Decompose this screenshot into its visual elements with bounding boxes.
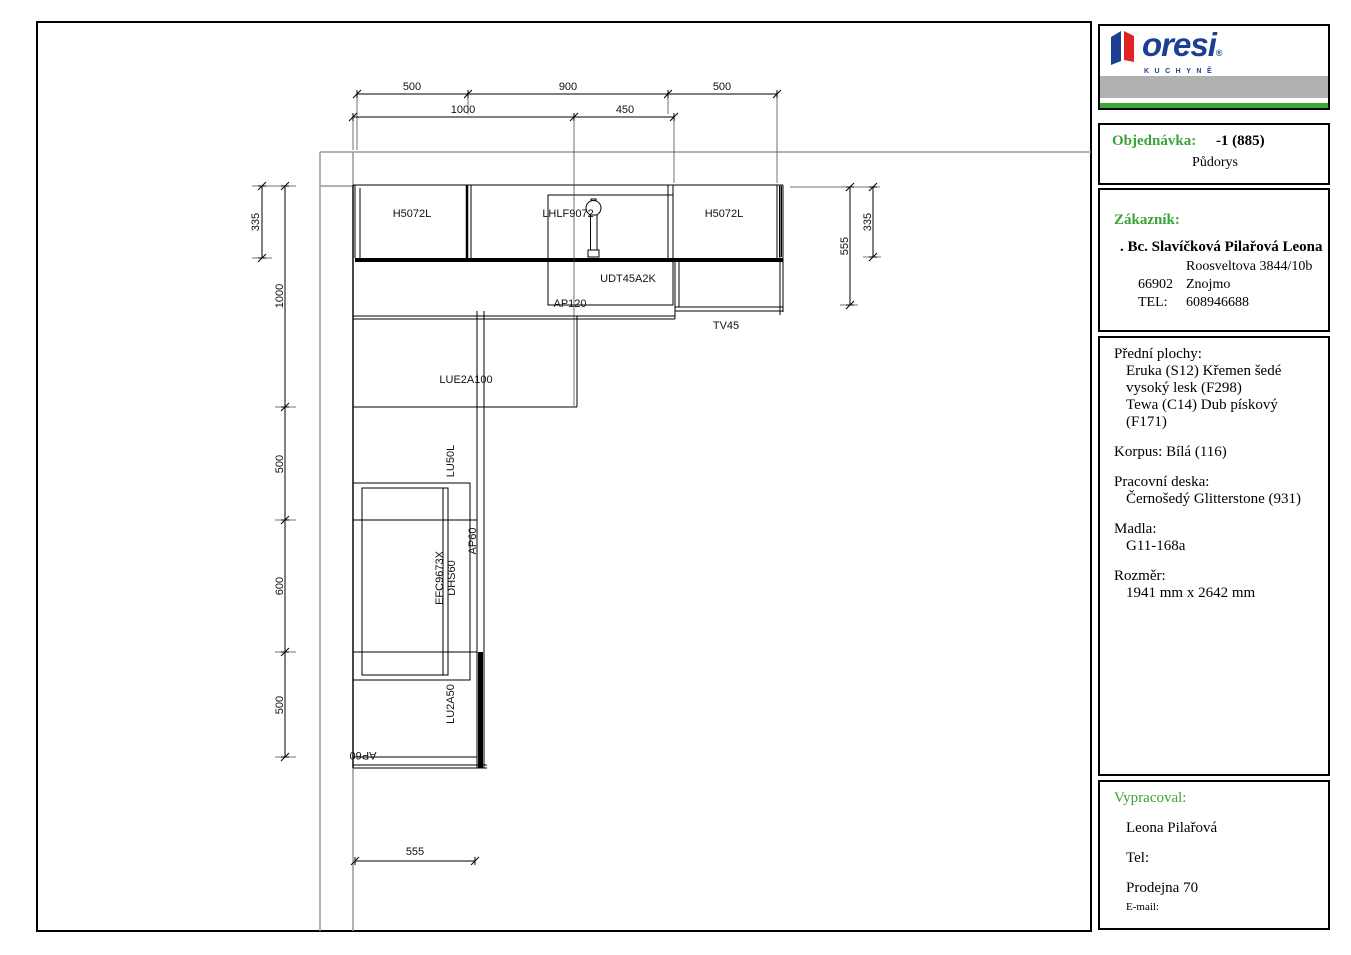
dim-top-900: 900	[559, 81, 577, 93]
customer-box: Zákazník: . Bc. Slavíčková Pilařová Leon…	[1098, 188, 1330, 332]
customer-name: . Bc. Slavíčková Pilařová Leona	[1120, 239, 1328, 256]
dim-right-335: 335	[862, 213, 874, 231]
label-tall-cab: UDT45A2K	[600, 273, 656, 285]
front-finish-1: Eruka (S12) Křemen šedé vysoký lesk (F29…	[1126, 363, 1322, 397]
order-label: Objednávka:	[1112, 133, 1196, 149]
registered-mark: ®	[1216, 48, 1222, 58]
logo-brand: oresi®	[1142, 26, 1222, 63]
handles-label: Madla:	[1114, 521, 1318, 538]
dim-top-450: 450	[616, 104, 634, 116]
label-lu2a50: LU2A50	[445, 684, 457, 724]
logo-green-bar	[1100, 103, 1328, 108]
dim-left-335: 335	[250, 213, 262, 231]
author-email-label: E-mail:	[1126, 901, 1322, 913]
customer-label: Zákazník:	[1114, 212, 1328, 229]
dim-top-500-right: 500	[713, 81, 731, 93]
customer-city: Znojmo	[1186, 277, 1230, 293]
dim-left-600: 600	[274, 577, 286, 595]
label-wall-cab-right: H5072L	[705, 208, 744, 220]
specs-box: Přední plochy: Eruka (S12) Křemen šedé v…	[1098, 336, 1330, 776]
dim-left-1000: 1000	[274, 284, 286, 308]
room-walls	[320, 152, 1091, 931]
dim-bottom-555: 555	[406, 846, 424, 858]
author-tel-label: Tel:	[1126, 850, 1322, 867]
label-wall-cab-left: H5072L	[393, 208, 432, 220]
label-lu50l: LU50L	[445, 445, 457, 477]
order-value: -1 (885)	[1216, 133, 1265, 149]
kitchen-plan-page: 500 900 500 1000 450 335 1000 500 600 50…	[0, 0, 1351, 955]
korpus-value: Bílá (116)	[1166, 444, 1227, 460]
author-store: Prodejna 70	[1126, 880, 1322, 897]
dim-top-1000: 1000	[451, 104, 475, 116]
customer-street: Roosveltova 3844/10b	[1186, 259, 1328, 275]
logo-gray-bar	[1100, 76, 1328, 98]
worktop-label: Pracovní deska:	[1114, 474, 1318, 491]
size-value: 1941 mm x 2642 mm	[1126, 585, 1322, 602]
label-ap60-side: AP60	[467, 528, 479, 555]
logo-text: oresi® KUCHYNĚ	[1142, 30, 1222, 75]
korpus-label: Korpus:	[1114, 444, 1162, 460]
size-label: Rozměr:	[1114, 568, 1318, 585]
label-ap120: AP120	[553, 298, 586, 310]
extension-lines	[252, 98, 881, 757]
logo-subbrand: KUCHYNĚ	[1144, 68, 1222, 75]
order-box: Objednávka: -1 (885) Půdorys	[1098, 123, 1330, 185]
base-cabinet-run	[353, 185, 577, 768]
view-name: Půdorys	[1112, 155, 1318, 171]
author-box: Vypracoval: Leona Pilařová Tel: Prodejna…	[1098, 780, 1330, 930]
label-hob: DHS60	[446, 560, 458, 595]
phone-label: TEL:	[1138, 295, 1186, 311]
label-hood: EFC9673X	[434, 550, 446, 604]
drawing-frame	[37, 22, 1091, 931]
label-corner-cab: LUE2A100	[439, 374, 492, 386]
wall-cabinet-row	[353, 185, 783, 315]
author-label: Vypracoval:	[1114, 790, 1318, 807]
worktop-value: Černošedý Glitterstone (931)	[1126, 491, 1322, 508]
dim-right-555: 555	[839, 237, 851, 255]
dim-top-500-left: 500	[403, 81, 421, 93]
dim-left-500a: 500	[274, 455, 286, 473]
customer-zip: 66902	[1138, 277, 1186, 293]
oresi-logo: oresi® KUCHYNĚ	[1100, 26, 1328, 74]
dimension-lines	[258, 90, 877, 865]
fronts-label: Přední plochy:	[1114, 346, 1318, 363]
oresi-cube-icon	[1108, 30, 1138, 66]
phone-value: 608946688	[1186, 295, 1249, 311]
dim-left-500b: 500	[274, 696, 286, 714]
front-finish-2: Tewa (C14) Dub pískový (F171)	[1126, 397, 1322, 431]
author-name: Leona Pilařová	[1126, 820, 1322, 837]
label-ap60-bottom: AP60	[350, 749, 377, 761]
handles-value: G11-168a	[1126, 538, 1322, 555]
label-wall-cab-mid: LHLF9072	[542, 208, 593, 220]
logo-box: oresi® KUCHYNĚ	[1098, 24, 1330, 110]
worktop-edges	[353, 262, 783, 319]
label-tv45: TV45	[713, 320, 739, 332]
